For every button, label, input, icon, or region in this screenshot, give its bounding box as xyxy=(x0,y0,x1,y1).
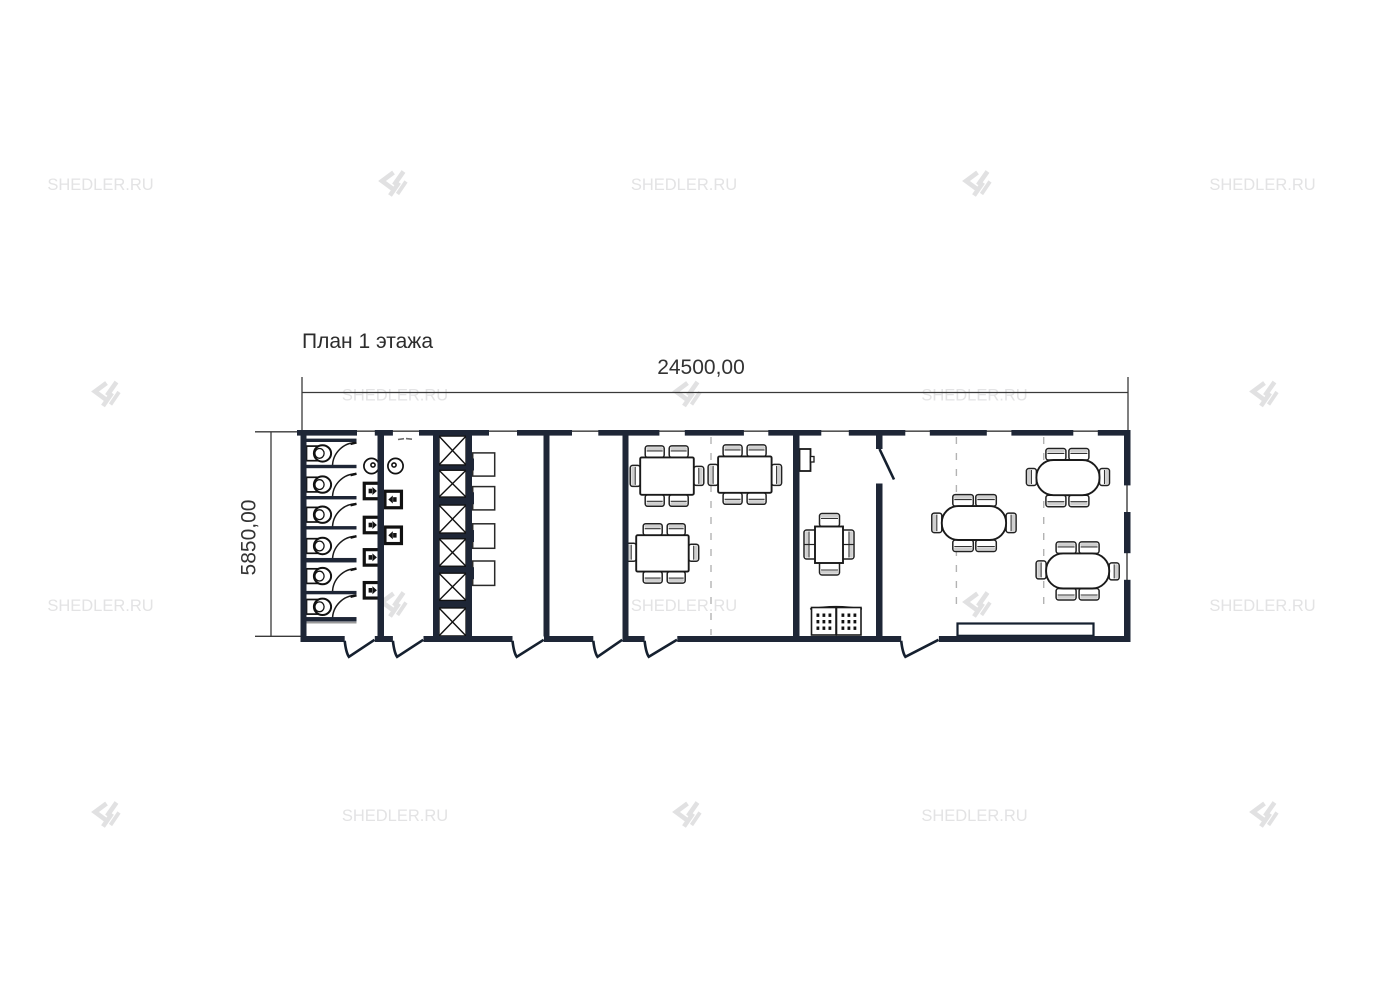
svg-text:SHEDLER.RU: SHEDLER.RU xyxy=(1209,597,1315,615)
svg-text:5850,00: 5850,00 xyxy=(238,500,261,576)
svg-text:SHEDLER.RU: SHEDLER.RU xyxy=(921,807,1027,825)
svg-text:План 1 этажа: План 1 этажа xyxy=(302,330,433,353)
svg-text:SHEDLER.RU: SHEDLER.RU xyxy=(47,176,153,194)
svg-text:24500,00: 24500,00 xyxy=(657,356,745,379)
svg-text:SHEDLER.RU: SHEDLER.RU xyxy=(47,597,153,615)
svg-text:SHEDLER.RU: SHEDLER.RU xyxy=(342,387,448,405)
svg-text:SHEDLER.RU: SHEDLER.RU xyxy=(921,387,1027,405)
svg-text:SHEDLER.RU: SHEDLER.RU xyxy=(342,807,448,825)
svg-text:SHEDLER.RU: SHEDLER.RU xyxy=(1209,176,1315,194)
svg-text:SHEDLER.RU: SHEDLER.RU xyxy=(631,176,737,194)
svg-text:SHEDLER.RU: SHEDLER.RU xyxy=(631,597,737,615)
